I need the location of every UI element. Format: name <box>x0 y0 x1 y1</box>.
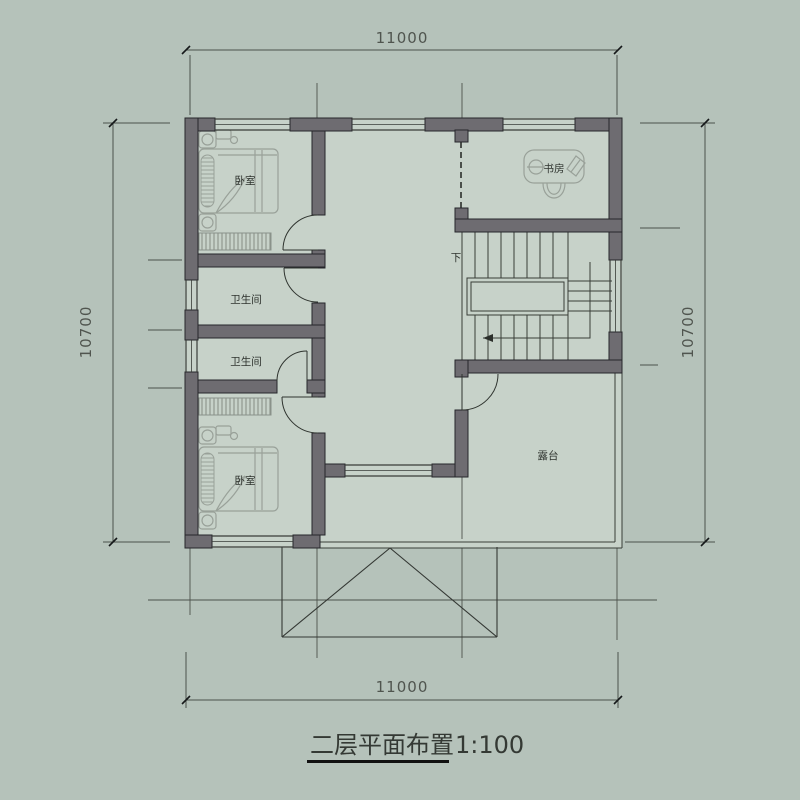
pillow-icon <box>201 155 214 207</box>
dim-right-value: 10700 <box>679 306 697 359</box>
label-stair-down: 下 <box>451 252 462 264</box>
drawing-scale: 1:100 <box>455 731 524 759</box>
label-bedroom-top: 卧室 <box>235 174 256 187</box>
label-bathroom-lower: 卫生间 <box>230 355 262 368</box>
label-study: 书房 <box>544 162 565 175</box>
dim-bottom-value: 11000 <box>376 678 429 696</box>
dresser-icon <box>216 130 231 139</box>
pillow-icon <box>201 453 214 505</box>
dim-left-value: 10700 <box>77 306 95 359</box>
drawing-title: 二层平面布置 <box>310 731 454 759</box>
label-bedroom-bottom: 卧室 <box>235 474 256 487</box>
wardrobe-icon <box>199 398 271 415</box>
title-block: 二层平面布置 1:100 <box>307 731 524 763</box>
dim-top-value: 11000 <box>376 29 429 47</box>
label-terrace: 露台 <box>538 449 559 462</box>
label-bathroom-upper: 卫生间 <box>230 293 262 306</box>
wardrobe-icon <box>199 233 271 250</box>
dresser-icon <box>216 426 231 435</box>
floor-plan: 11000 11000 10700 10700 <box>0 0 800 800</box>
title-underline <box>307 760 449 763</box>
